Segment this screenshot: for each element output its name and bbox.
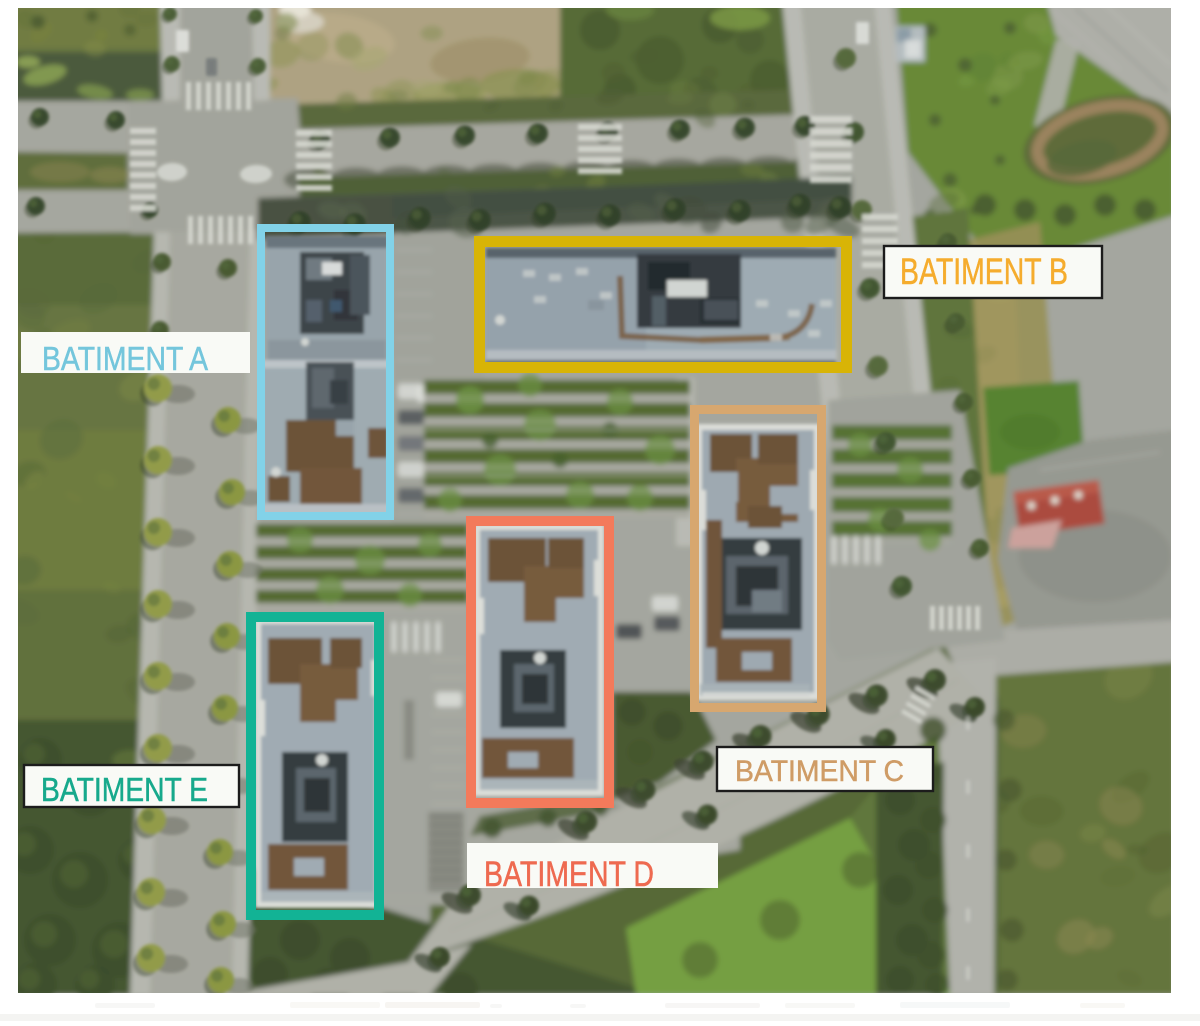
svg-text:BATIMENT B: BATIMENT B bbox=[900, 251, 1068, 292]
svg-text:BATIMENT A: BATIMENT A bbox=[42, 340, 208, 377]
svg-text:BATIMENT C: BATIMENT C bbox=[735, 755, 904, 788]
svg-text:BATIMENT E: BATIMENT E bbox=[41, 771, 208, 808]
svg-text:BATIMENT D: BATIMENT D bbox=[484, 855, 654, 894]
